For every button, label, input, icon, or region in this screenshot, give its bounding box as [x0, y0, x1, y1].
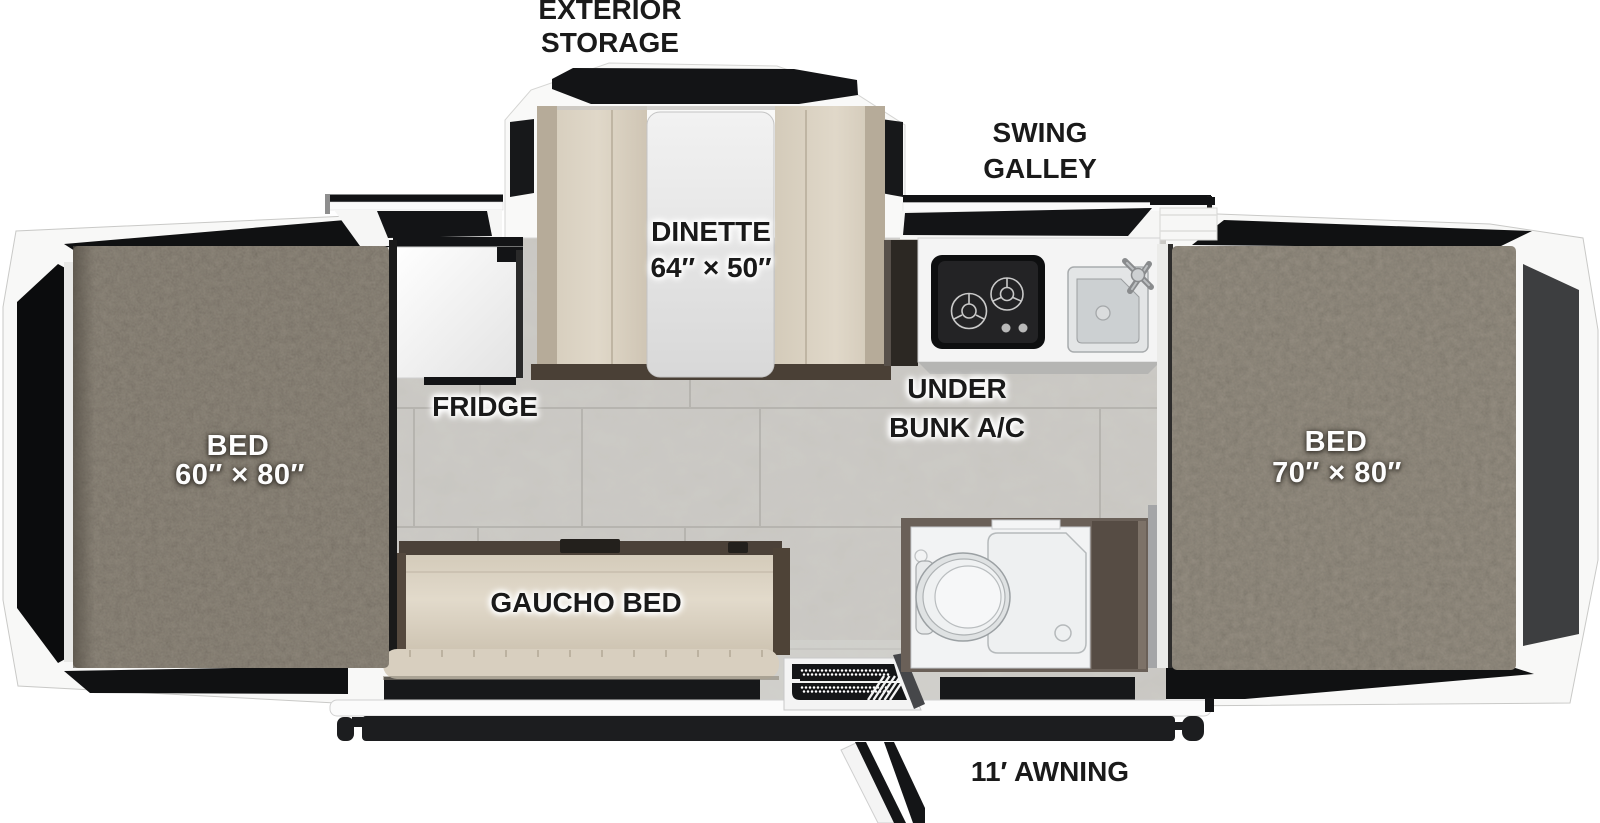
svg-text:70″ × 80″: 70″ × 80″	[1272, 457, 1402, 489]
svg-text:GALLEY: GALLEY	[983, 153, 1097, 184]
svg-text:UNDER: UNDER	[907, 373, 1007, 404]
svg-text:11′ AWNING: 11′ AWNING	[971, 756, 1129, 787]
svg-text:BUNK A/C: BUNK A/C	[889, 412, 1025, 443]
svg-text:BED: BED	[1305, 426, 1368, 458]
svg-text:64″ × 50″: 64″ × 50″	[650, 252, 771, 283]
svg-text:60″ × 80″: 60″ × 80″	[175, 459, 305, 491]
svg-text:DINETTE: DINETTE	[651, 216, 771, 247]
svg-text:STORAGE: STORAGE	[541, 27, 679, 58]
svg-text:FRIDGE: FRIDGE	[432, 391, 538, 422]
svg-text:GAUCHO BED: GAUCHO BED	[490, 587, 681, 618]
svg-text:SWING: SWING	[993, 117, 1088, 148]
svg-text:BED: BED	[207, 430, 270, 462]
svg-text:EXTERIOR: EXTERIOR	[538, 0, 681, 25]
